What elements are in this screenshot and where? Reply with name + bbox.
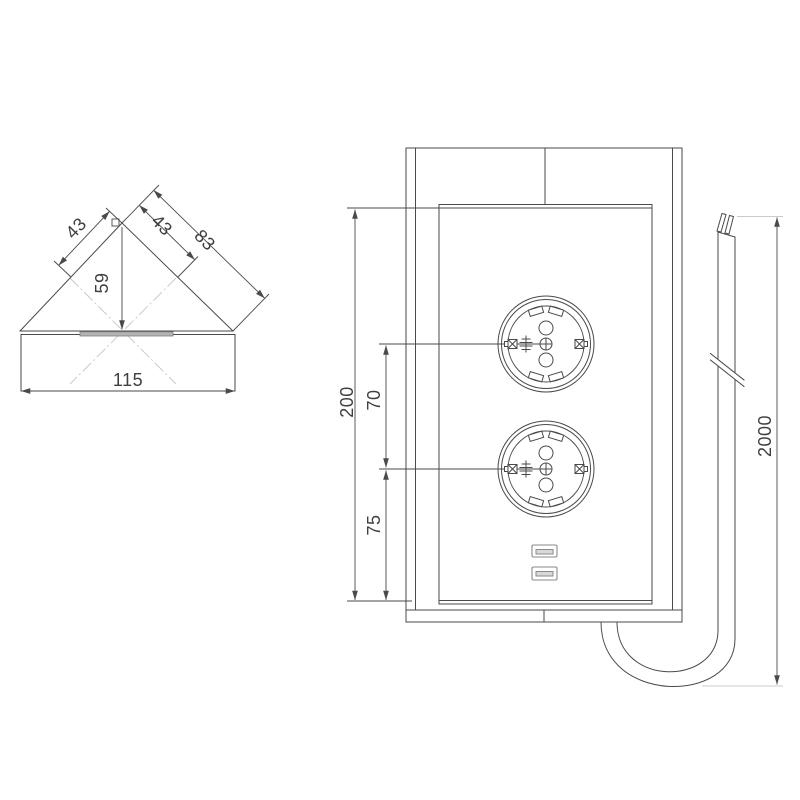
face-panel <box>439 205 652 605</box>
witness-line <box>106 208 122 223</box>
cable-break-mask <box>710 353 744 386</box>
dim-label-75: 75 <box>364 514 384 535</box>
wire-end-left <box>717 214 726 233</box>
cable-break-line <box>711 360 745 387</box>
front-view: 200 70 75 <box>337 148 682 622</box>
wire-end-right <box>725 216 734 235</box>
usb-port-top <box>532 545 557 557</box>
dim-line-43-left <box>59 211 110 265</box>
dim-label-115: 115 <box>113 370 143 390</box>
cable-inner-line <box>617 232 718 672</box>
right-angle-mark <box>112 219 119 226</box>
cable-break-line <box>711 354 745 381</box>
dim-label-43-left: 43 <box>62 214 91 243</box>
dim-label-2000: 2000 <box>755 415 775 457</box>
witness-line <box>54 261 71 277</box>
technical-drawing-page: 43 43 83 59 115 <box>0 0 800 800</box>
cable-outer-line <box>601 237 735 687</box>
usb-port-bottom <box>532 567 557 580</box>
dim-label-43-right: 43 <box>147 211 176 240</box>
schuko-socket-bottom <box>498 421 594 517</box>
lid-groove <box>80 332 173 336</box>
schuko-socket-top <box>498 296 594 392</box>
dim-label-59: 59 <box>92 272 112 293</box>
witness-line <box>233 294 269 331</box>
dim-label-200: 200 <box>337 386 357 418</box>
corner-top-view: 43 43 83 59 115 <box>20 185 269 391</box>
power-cable: 2000 <box>601 214 783 687</box>
dim-label-70: 70 <box>364 389 384 410</box>
drawing-svg: 43 43 83 59 115 <box>0 0 800 800</box>
